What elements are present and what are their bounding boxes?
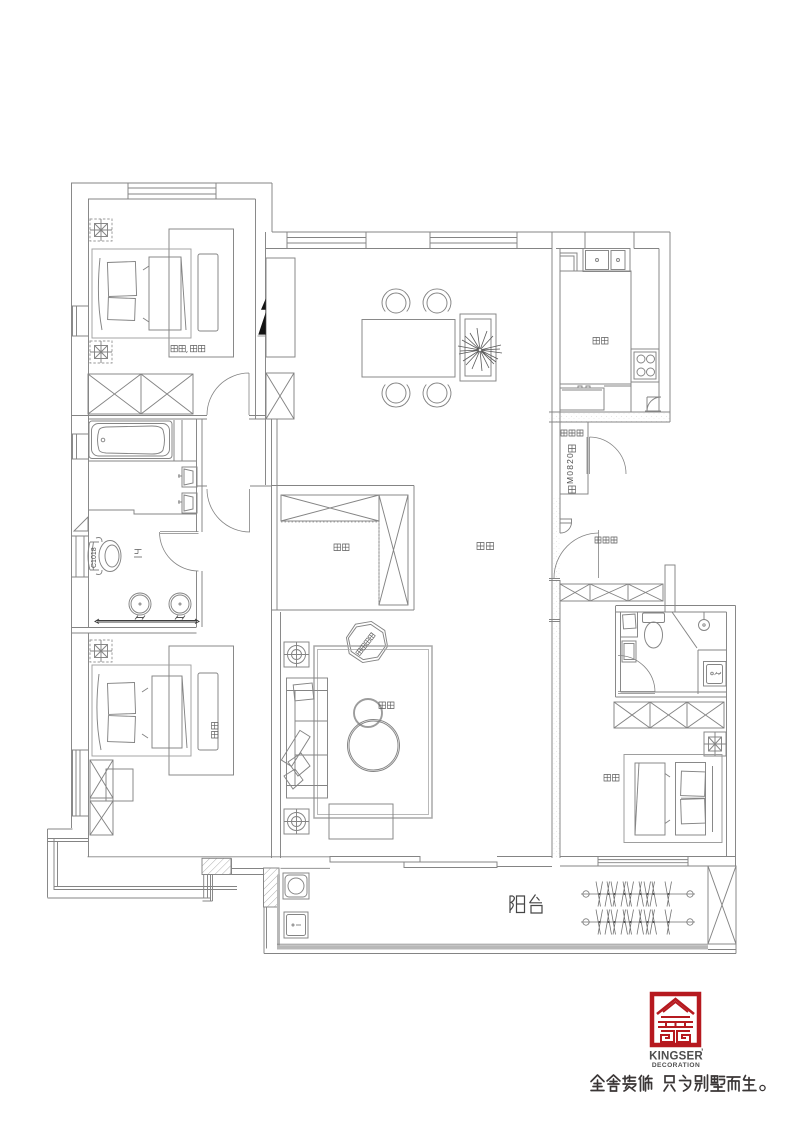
svg-text:KINGSER: KINGSER bbox=[649, 1051, 703, 1063]
svg-text:DECORATION: DECORATION bbox=[652, 1062, 700, 1069]
svg-text:’: ’ bbox=[701, 1047, 703, 1057]
svg-text:C1018: C1018 bbox=[91, 547, 98, 568]
svg-text:M0820: M0820 bbox=[565, 452, 575, 484]
